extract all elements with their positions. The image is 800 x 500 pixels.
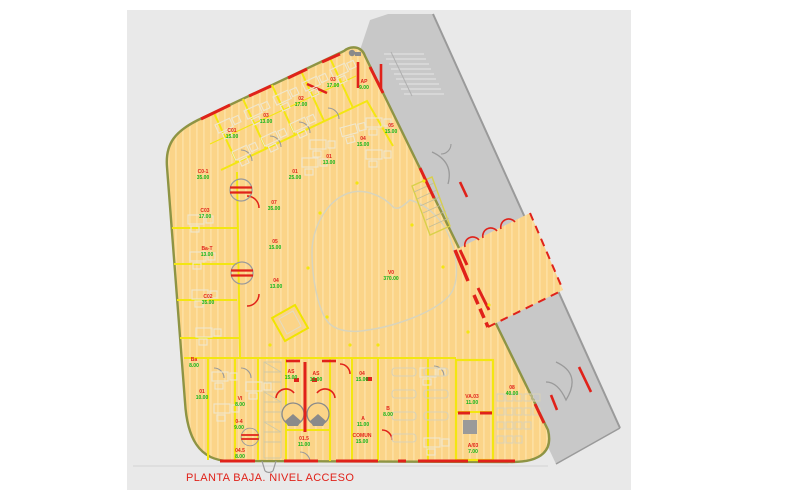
room-area: 8.00 — [235, 454, 245, 460]
column-dot — [355, 181, 358, 184]
room-area: 35.00 — [268, 206, 281, 212]
room-area: 7.00 — [468, 449, 478, 455]
room-area: 8.00 — [383, 412, 393, 418]
room-area: 35.00 — [202, 300, 215, 306]
room-area: 15.00 — [310, 377, 323, 383]
room-area: 17.00 — [295, 102, 308, 108]
column-dot — [466, 330, 469, 333]
room-area: 13.00 — [201, 252, 214, 258]
room-area: 13.00 — [260, 119, 273, 125]
column-dot — [441, 265, 444, 268]
room-area: 25.00 — [289, 175, 302, 181]
column-dot — [487, 303, 490, 306]
room-area: 370.00 — [383, 276, 399, 282]
room-area: 17.00 — [199, 214, 212, 220]
room-area: 15.00 — [385, 129, 398, 135]
column-dot — [318, 211, 321, 214]
room-area: 15.00 — [285, 375, 298, 381]
elevator-box — [463, 420, 477, 434]
room-area: 8.00 — [189, 363, 199, 369]
room-area: 11.00 — [298, 442, 310, 448]
column-dot — [268, 343, 271, 346]
column-dot — [348, 343, 351, 346]
column-dot — [306, 266, 309, 269]
room-area: 11.00 — [357, 422, 369, 428]
plan-canvas: 0317.00AP9.000217.000313.00C0115.00C0-13… — [0, 0, 800, 500]
floorplan-screenshot: 0317.00AP9.000217.000313.00C0115.00C0-13… — [0, 0, 800, 500]
room-area: 15.00 — [357, 142, 370, 148]
room-area: 13.00 — [323, 160, 336, 166]
room-area: 15.00 — [226, 134, 239, 140]
column-dot — [422, 179, 425, 182]
room-area: 8.00 — [235, 402, 245, 408]
room-area: 17.00 — [327, 83, 340, 89]
room-area: 10.00 — [196, 395, 209, 401]
plan-caption: PLANTA BAJA. NIVEL ACCESO — [186, 472, 354, 484]
column-dot — [376, 343, 379, 346]
room-area: 35.00 — [197, 175, 210, 181]
column-dot — [325, 315, 328, 318]
room-area: 15.00 — [356, 439, 369, 445]
room-area: 15.00 — [356, 377, 369, 383]
room-area: 9.00 — [359, 85, 369, 91]
room-area: 15.00 — [269, 245, 282, 251]
column-dot — [410, 223, 413, 226]
room-area: 13.00 — [270, 284, 283, 290]
room-area: 9.00 — [234, 425, 244, 431]
room-area: 40.00 — [506, 391, 519, 397]
room-area: 11.00 — [466, 400, 478, 406]
